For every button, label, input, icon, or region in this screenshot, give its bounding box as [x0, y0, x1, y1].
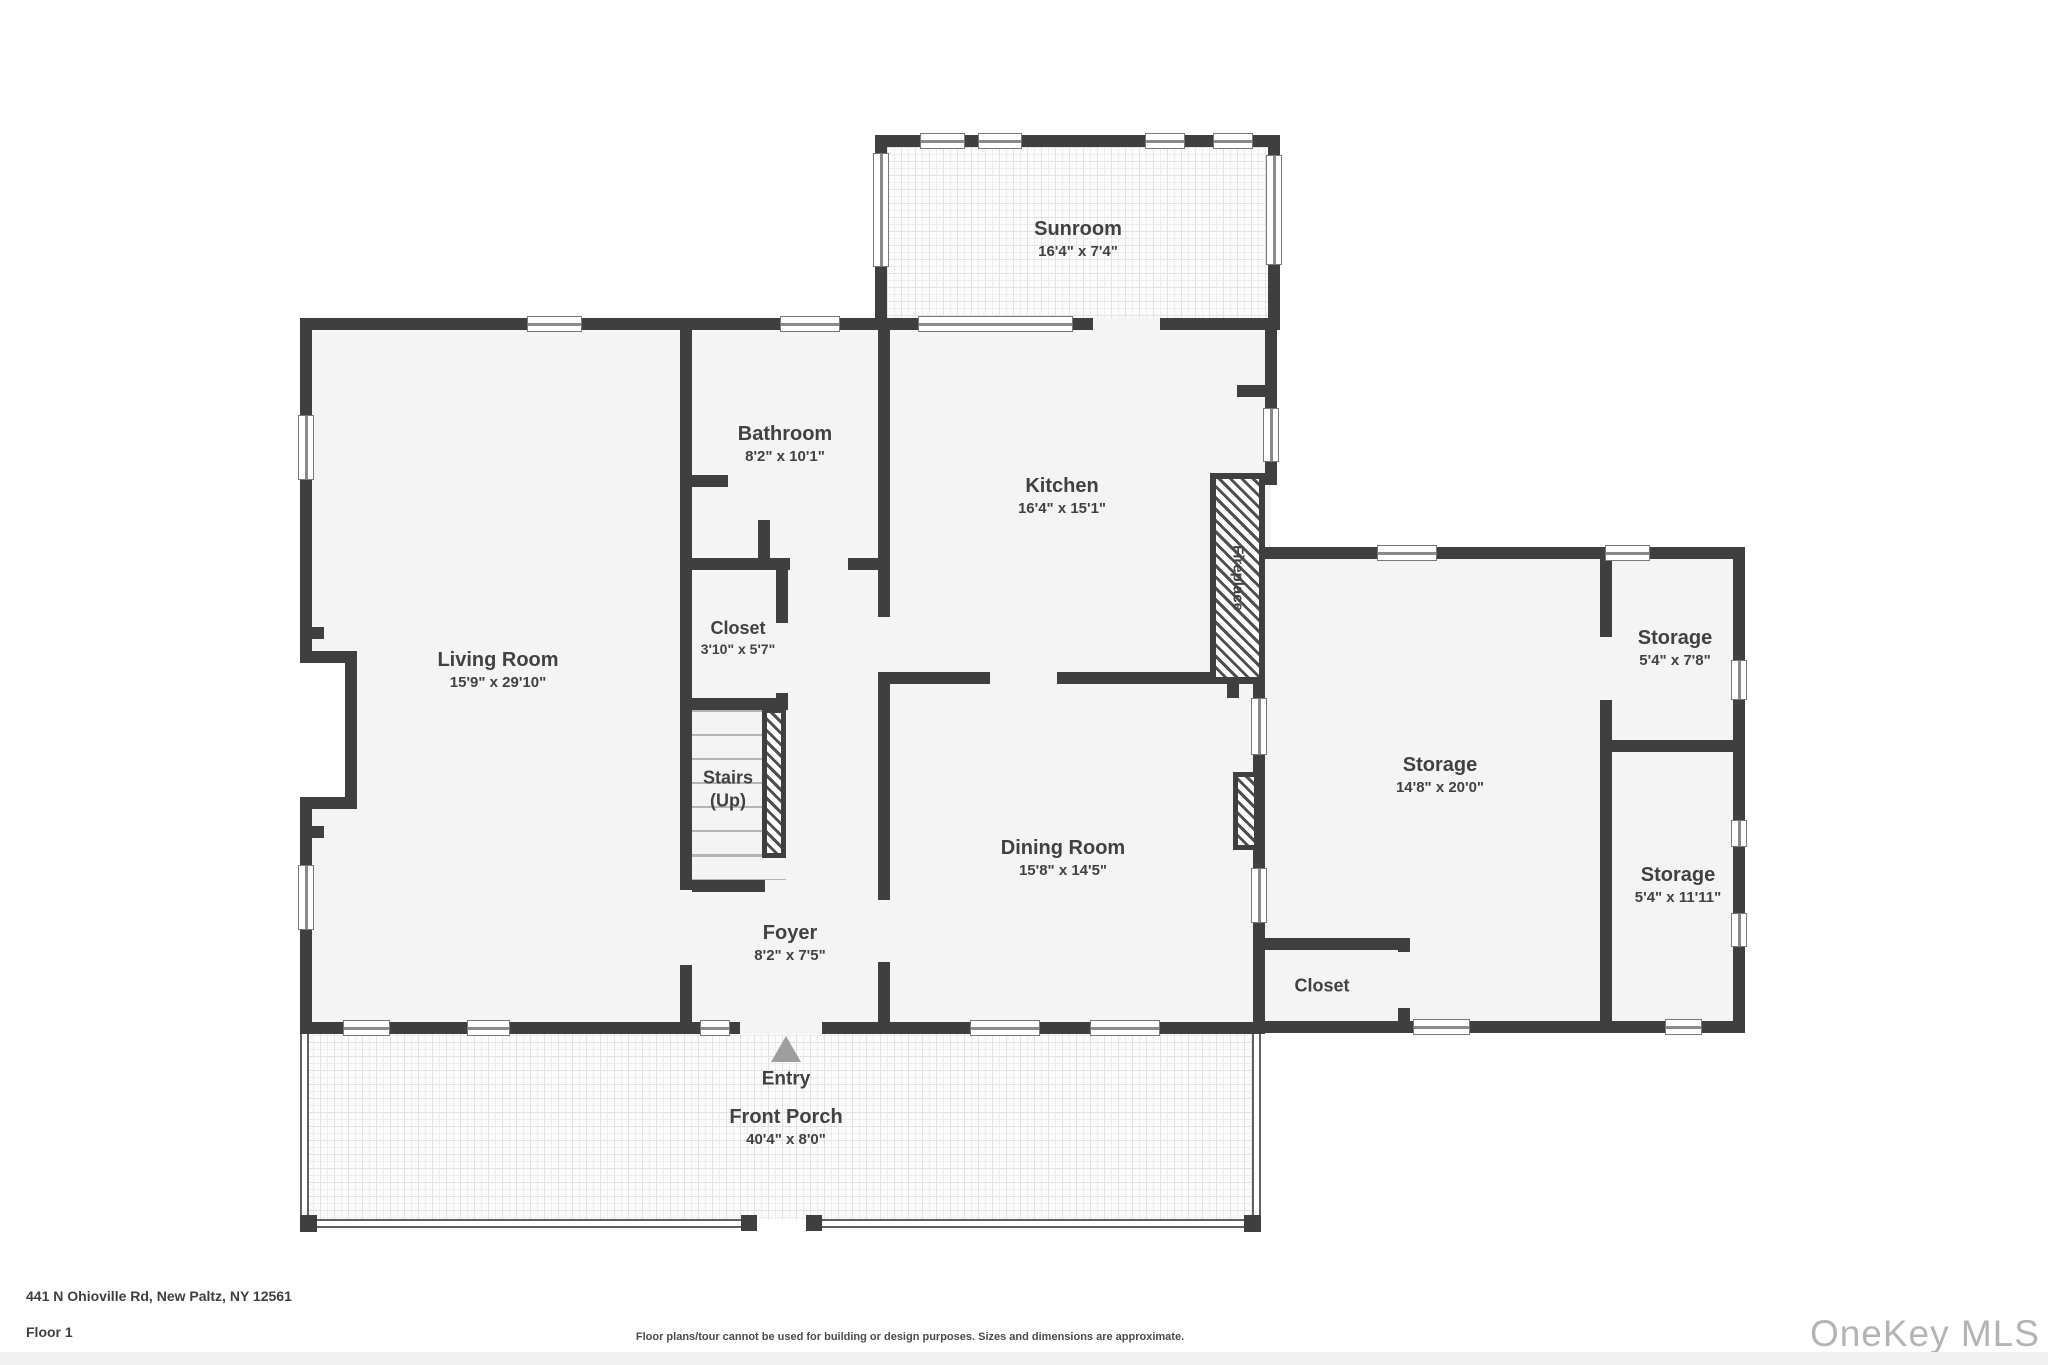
window: [1731, 660, 1747, 700]
wall: [1470, 1021, 1665, 1033]
wall-stub: [680, 475, 728, 487]
window: [1090, 1020, 1160, 1036]
wall: [1702, 1021, 1745, 1033]
door-opening: [790, 558, 848, 570]
chimney: [1233, 772, 1259, 850]
door-opening: [680, 890, 692, 965]
door-opening: [1398, 952, 1410, 1008]
address-text: 441 N Ohioville Rd, New Paltz, NY 12561: [26, 1288, 292, 1304]
entry-arrow-icon: [771, 1036, 801, 1062]
room-label-foyer: Foyer 8'2" x 7'5": [754, 920, 825, 966]
window: [970, 1020, 1040, 1036]
window: [467, 1020, 510, 1036]
wall: [878, 672, 990, 684]
wall: [1437, 547, 1605, 559]
wall: [680, 558, 790, 570]
wall: [878, 318, 890, 617]
room-name: Living Room: [437, 647, 558, 673]
room-name: Front Porch: [729, 1104, 842, 1130]
room-label-storage-main: Storage 14'8" x 20'0": [1396, 752, 1484, 798]
room-name: Kitchen: [1018, 473, 1106, 499]
room-name: Foyer: [754, 920, 825, 946]
room-label-storage-ne: Storage 5'4" x 7'8": [1638, 625, 1712, 671]
room-label-fireplace: Fireplace: [1230, 545, 1247, 611]
window: [978, 133, 1022, 149]
wall: [300, 480, 312, 663]
wall: [688, 880, 765, 892]
porch-rail-left: [300, 1034, 309, 1224]
wall: [1600, 553, 1612, 637]
door-opening: [1093, 318, 1160, 330]
wall: [1398, 938, 1410, 952]
floor-plan-page: Sunroom 16'4" x 7'4" Bathroom 8'2" x 10'…: [0, 0, 2048, 1365]
floor-label: Floor 1: [26, 1324, 73, 1340]
porch-rail-bottom-right: [822, 1219, 1246, 1228]
room-label-living-room: Living Room 15'9" x 29'10": [437, 647, 558, 693]
wall: [1398, 1008, 1410, 1021]
door-opening: [990, 672, 1057, 684]
wall: [1253, 547, 1377, 559]
wall: [510, 1022, 700, 1034]
wall: [730, 1022, 740, 1034]
footer-strip: [0, 1352, 2048, 1365]
room-name: Dining Room: [1001, 835, 1125, 861]
wall: [300, 1022, 343, 1034]
wall-stub: [1237, 385, 1265, 397]
window: [918, 316, 1073, 332]
room-dims: 3'10" x 5'7": [701, 640, 775, 659]
wall: [1040, 1022, 1090, 1034]
porch-post: [300, 1215, 317, 1232]
room-label-storage-closet: Closet: [1294, 974, 1349, 997]
wall: [1073, 318, 1093, 330]
window: [780, 316, 840, 332]
room-label-front-porch: Front Porch 40'4" x 8'0": [729, 1104, 842, 1150]
wall: [875, 135, 887, 153]
window: [527, 316, 582, 332]
wall: [345, 651, 357, 809]
door-opening: [776, 623, 788, 693]
room-name: Storage: [1396, 752, 1484, 778]
wall: [1268, 135, 1280, 155]
door-opening: [878, 617, 890, 672]
room-dims: 15'8" x 14'5": [1001, 861, 1125, 881]
wall-stub: [1227, 684, 1239, 698]
room-label-stairs: Stairs (Up): [703, 767, 753, 814]
wall: [300, 930, 312, 1034]
wall: [1733, 700, 1745, 820]
wall: [1265, 462, 1277, 485]
window: [1263, 408, 1279, 462]
window: [298, 865, 314, 930]
room-label-sunroom: Sunroom 16'4" x 7'4": [1034, 216, 1122, 262]
wall: [965, 135, 978, 147]
room-name: Entry: [762, 1068, 811, 1093]
wall: [1265, 1021, 1413, 1033]
window: [1605, 545, 1650, 561]
room-label-dining-room: Dining Room 15'8" x 14'5": [1001, 835, 1125, 881]
window: [873, 153, 889, 267]
door-opening: [878, 900, 890, 962]
wall: [300, 797, 312, 865]
room-dims: 15'9" x 29'10": [437, 673, 558, 693]
window: [1145, 133, 1185, 149]
wall: [1612, 740, 1745, 752]
porch-post: [806, 1215, 822, 1231]
porch-rail-right: [1252, 1034, 1261, 1224]
room-label-closet: Closet 3'10" x 5'7": [701, 617, 775, 659]
room-name: Storage: [1635, 862, 1721, 888]
window: [1413, 1019, 1470, 1035]
room-dims: 8'2" x 10'1": [738, 447, 832, 467]
porch-rail-bottom-left: [316, 1219, 741, 1228]
wall: [1160, 318, 1277, 330]
wall: [1600, 700, 1612, 1021]
room-name: Bathroom: [738, 421, 832, 447]
exterior-notch: [300, 663, 351, 803]
window: [1665, 1019, 1702, 1035]
window: [1377, 545, 1437, 561]
window: [1266, 155, 1282, 265]
wall: [1160, 1022, 1265, 1034]
room-name: Sunroom: [1034, 216, 1122, 242]
room-name: Storage: [1638, 625, 1712, 651]
room-dims: 5'4" x 7'8": [1638, 651, 1712, 671]
wall: [1733, 847, 1745, 913]
door-opening: [1600, 637, 1612, 700]
porch-post: [741, 1215, 757, 1231]
window: [343, 1020, 390, 1036]
room-name: Stairs: [703, 767, 753, 790]
wall: [300, 318, 312, 415]
window: [1251, 868, 1267, 923]
window: [1251, 698, 1267, 755]
window: [700, 1020, 730, 1036]
window: [920, 133, 965, 149]
room-dims: 16'4" x 15'1": [1018, 499, 1106, 519]
room-dims: 8'2" x 7'5": [754, 946, 825, 966]
wall: [822, 1022, 970, 1034]
front-door-opening: [740, 1022, 822, 1034]
room-dims: (Up): [703, 790, 753, 813]
wall: [1022, 135, 1145, 147]
window: [1213, 133, 1253, 149]
room-dims: 40'4" x 8'0": [729, 1130, 842, 1150]
disclaimer-text: Floor plans/tour cannot be used for buil…: [636, 1331, 1184, 1343]
room-label-storage-se: Storage 5'4" x 11'11": [1635, 862, 1721, 908]
wall: [390, 1022, 467, 1034]
wall: [1185, 135, 1213, 147]
wall: [1257, 938, 1410, 950]
room-dims: 14'8" x 20'0": [1396, 778, 1484, 798]
room-dims: 16'4" x 7'4": [1034, 242, 1122, 262]
room-label-kitchen: Kitchen 16'4" x 15'1": [1018, 473, 1106, 519]
room-name: Closet: [701, 617, 775, 640]
window: [1731, 820, 1747, 847]
stairs-rail: [762, 708, 786, 858]
wall: [300, 318, 527, 330]
wall: [878, 684, 890, 900]
stairs-steps-lower: [692, 855, 786, 880]
wall: [1650, 547, 1745, 559]
window: [1731, 913, 1747, 947]
onekey-mls-watermark: OneKey MLS: [1810, 1313, 2040, 1355]
room-label-bathroom: Bathroom 8'2" x 10'1": [738, 421, 832, 467]
wall: [1265, 318, 1277, 408]
porch-post: [1244, 1215, 1261, 1232]
wall: [776, 558, 788, 623]
room-dims: 5'4" x 11'11": [1635, 888, 1721, 908]
wall: [1733, 547, 1745, 660]
room-name: Closet: [1294, 974, 1349, 997]
wall: [680, 318, 692, 890]
wall-stub: [312, 627, 324, 639]
wall-stub: [312, 826, 324, 838]
room-label-entry: Entry: [762, 1068, 811, 1093]
window: [298, 415, 314, 480]
